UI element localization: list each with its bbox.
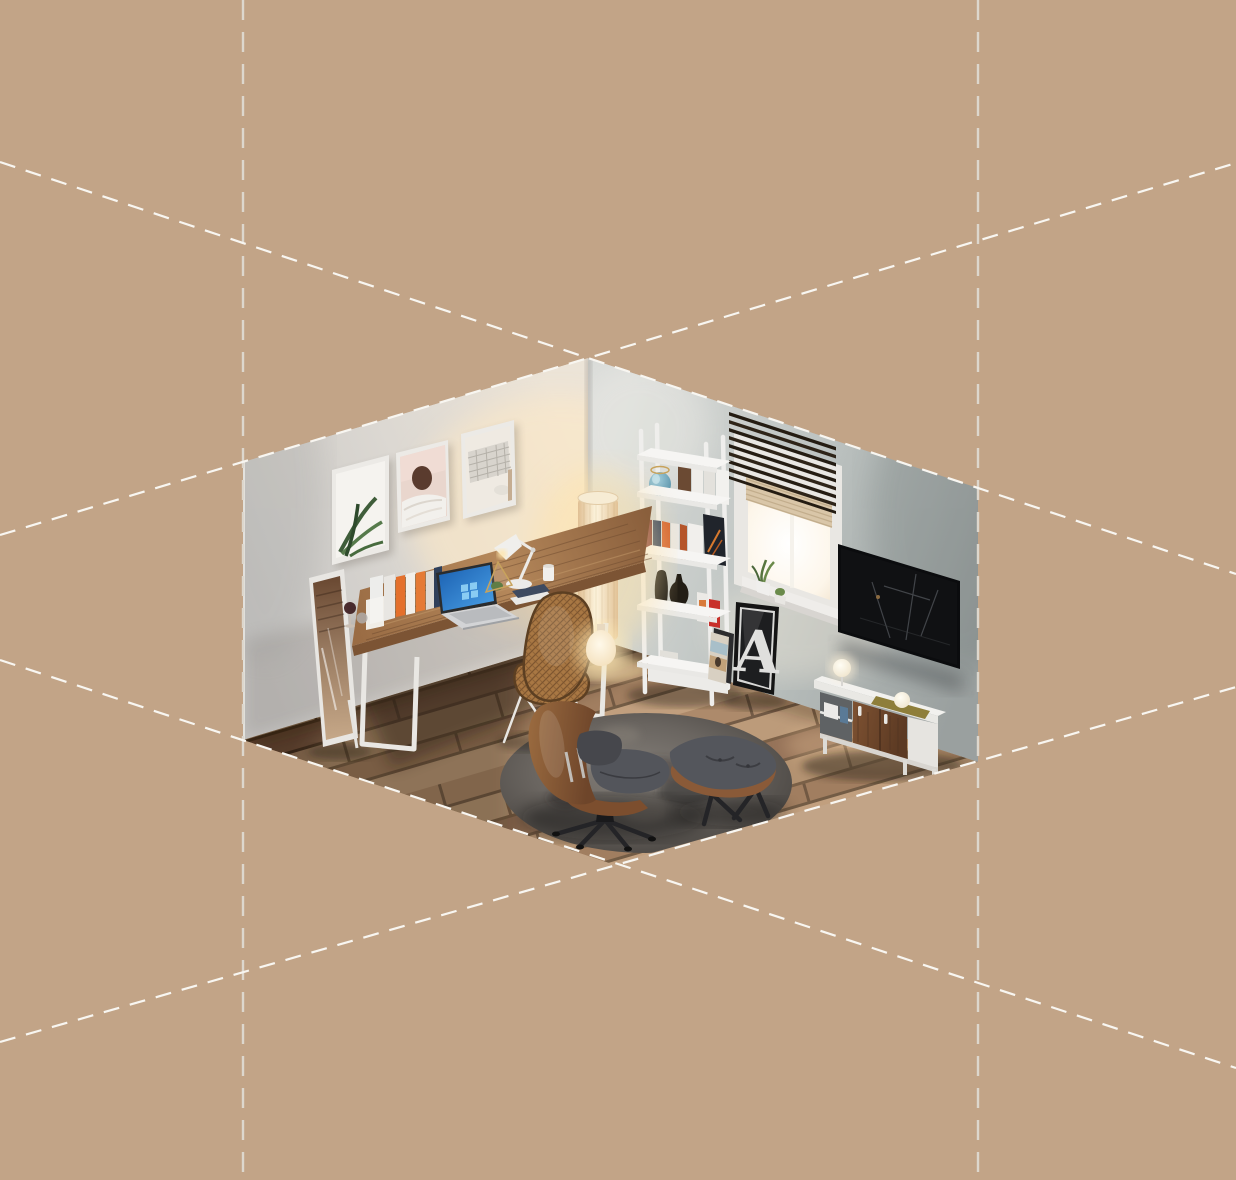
gourd-lamp [575, 624, 627, 676]
isometric-room-poster: A [0, 0, 1236, 1180]
wall-art-keyboard [461, 420, 516, 519]
glass-sphere [357, 613, 368, 624]
wall-art-portrait [396, 440, 450, 533]
candle [543, 564, 554, 581]
letter-poster: A [732, 602, 784, 695]
scene-canvas: A [0, 0, 1236, 1180]
leaning-prints [708, 628, 734, 684]
wall-art-plant [332, 455, 389, 565]
